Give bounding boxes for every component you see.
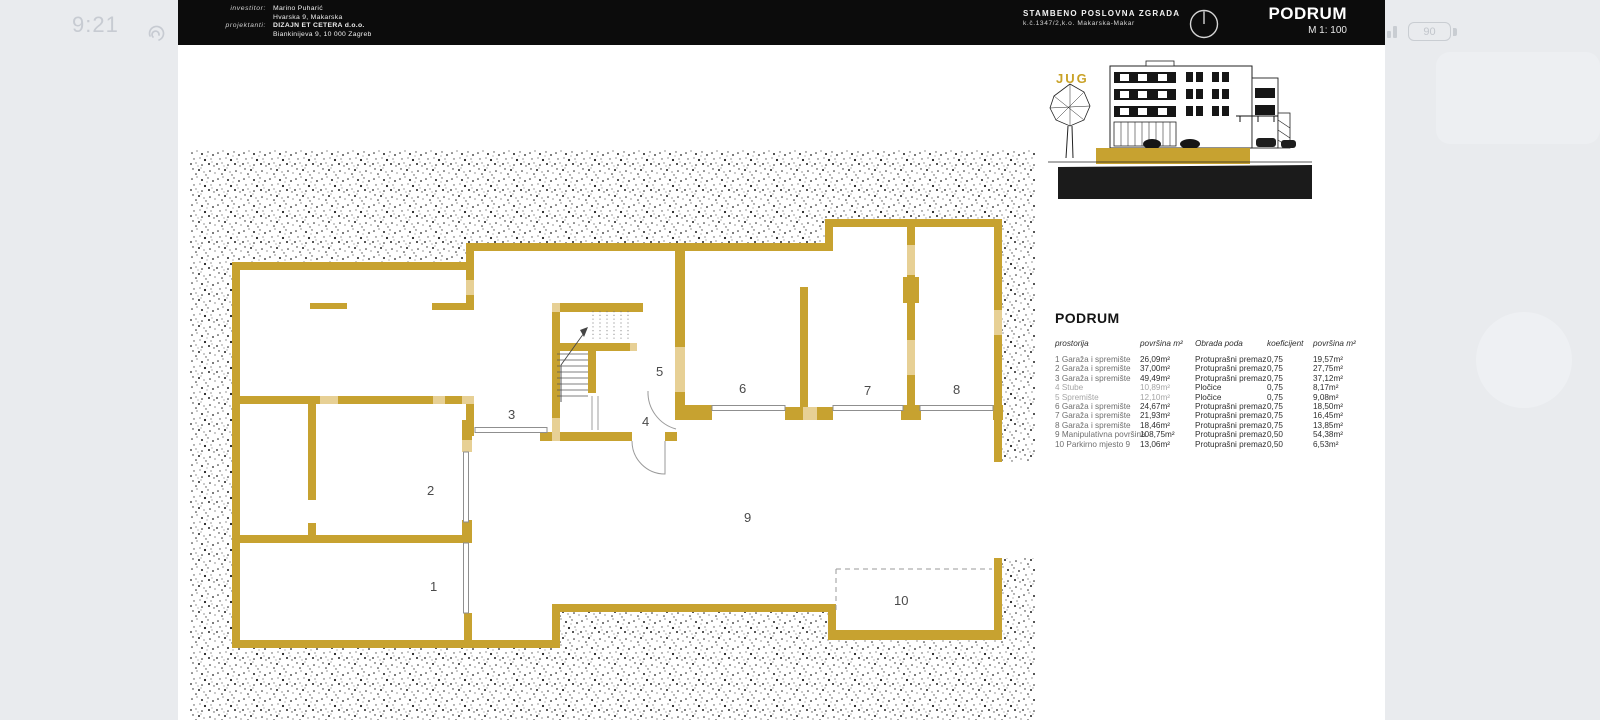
battery-indicator: 90 — [1408, 22, 1451, 41]
cell-coef: 0,75 — [1267, 374, 1313, 383]
cell-area: 10,89m² — [1140, 383, 1195, 392]
cell-area: 13,06m² — [1140, 440, 1195, 449]
status-time: 9:21 — [72, 12, 119, 38]
room-label-5: 5 — [656, 364, 663, 379]
cell-finish: Protuprašni premaz — [1195, 374, 1267, 383]
table-row: 1 Garaža i spremište 26,09m² Protuprašni… — [1055, 355, 1355, 364]
cell-finish: Protuprašni premaz — [1195, 355, 1267, 364]
cell-net: 6,53m² — [1313, 440, 1355, 449]
sheet-scale: M 1: 100 — [1268, 25, 1347, 36]
cell-finish: Protuprašni premaz — [1195, 440, 1267, 449]
cell-coef: 0,50 — [1267, 440, 1313, 449]
cell-area: 12,10m² — [1140, 393, 1195, 402]
room-label-1: 1 — [430, 579, 437, 594]
cell-area: 49,49m² — [1140, 374, 1195, 383]
designer-name: DIZAJN ET CETERA d.o.o. — [273, 22, 372, 31]
room-schedule-table: PODRUM prostorija površina m² Obrada pod… — [1055, 300, 1355, 449]
room-label-2: 2 — [427, 483, 434, 498]
cell-area: 21,93m² — [1140, 411, 1195, 420]
floor-plan-drawing: 1 2 3 4 5 6 7 8 9 10 — [190, 150, 1040, 720]
cell-coef: 0,50 — [1267, 430, 1313, 439]
room-label-3: 3 — [508, 407, 515, 422]
project-parcel: k.č.1347/2,k.o. Makarska-Makar — [1023, 20, 1193, 27]
cell-area: 108,75m² — [1140, 430, 1195, 439]
cell-net: 27,75m² — [1313, 364, 1355, 373]
table-row: 4 Stube 10,89m² Pločice 0,75 8,17m² — [1055, 383, 1355, 392]
cell-net: 37,12m² — [1313, 374, 1355, 383]
south-elevation-drawing: JUG — [1040, 58, 1320, 205]
table-row: 2 Garaža i spremište 37,00m² Protuprašni… — [1055, 364, 1355, 373]
cell-area: 24,67m² — [1140, 402, 1195, 411]
cell-coef: 0,75 — [1267, 383, 1313, 392]
cell-finish: Protuprašni premaz — [1195, 430, 1267, 439]
table-row: 6 Garaža i spremište 24,67m² Protuprašni… — [1055, 402, 1355, 411]
cell-finish: Protuprašni premaz — [1195, 364, 1267, 373]
cell-finish: Protuprašni premaz — [1195, 421, 1267, 430]
cell-finish: Pločice — [1195, 393, 1267, 402]
cell-room: 7 Garaža i spremište — [1055, 411, 1140, 420]
room-label-9: 9 — [744, 510, 751, 525]
table-body: 1 Garaža i spremište 26,09m² Protuprašni… — [1055, 355, 1355, 449]
project-identification: STAMBENO POSLOVNA ZGRADA k.č.1347/2,k.o.… — [1023, 9, 1193, 27]
room-label-6: 6 — [739, 381, 746, 396]
designer-label: projektanti: — [216, 22, 266, 31]
designer-address: Biankinijeva 9, 10 000 Zagreb — [273, 31, 372, 40]
table-row: 3 Garaža i spremište 49,49m² Protuprašni… — [1055, 374, 1355, 383]
col-header-coef: koeficijent — [1267, 339, 1313, 348]
plan-walls — [232, 219, 1003, 648]
battery-nub — [1453, 28, 1457, 36]
col-header-room: prostorija — [1055, 339, 1140, 348]
attachment-icon — [146, 24, 168, 42]
cell-net: 54,38m² — [1313, 430, 1355, 439]
cell-net: 9,08m² — [1313, 393, 1355, 402]
cell-room: 3 Garaža i spremište — [1055, 374, 1140, 383]
cell-room: 2 Garaža i spremište — [1055, 364, 1140, 373]
col-header-net: površina m² — [1313, 339, 1355, 348]
cell-area: 18,46m² — [1140, 421, 1195, 430]
screen-background: 9:21 90 investitor: Marino Puharić Hvars… — [0, 0, 1600, 720]
cell-net: 19,57m² — [1313, 355, 1355, 364]
clock-icon — [1186, 5, 1222, 41]
cell-room: 9 Manipulativna površina — [1055, 430, 1140, 439]
sheet-identification: PODRUM M 1: 100 — [1268, 4, 1347, 36]
cell-room: 1 Garaža i spremište — [1055, 355, 1140, 364]
col-header-finish: Obrada poda — [1195, 339, 1267, 348]
table-row: 9 Manipulativna površina 108,75m² Protup… — [1055, 430, 1355, 439]
cell-room: 10 Parkirno mjesto 9 — [1055, 440, 1140, 449]
cell-coef: 0,75 — [1267, 421, 1313, 430]
cell-area: 26,09m² — [1140, 355, 1195, 364]
cell-finish: Protuprašni premaz — [1195, 411, 1267, 420]
cell-room: 4 Stube — [1055, 383, 1140, 392]
cell-coef: 0,75 — [1267, 364, 1313, 373]
room-label-7: 7 — [864, 383, 871, 398]
cell-net: 16,45m² — [1313, 411, 1355, 420]
signal-icon — [1387, 21, 1405, 39]
cell-finish: Pločice — [1195, 383, 1267, 392]
cell-net: 18,50m² — [1313, 402, 1355, 411]
room-label-4: 4 — [642, 414, 649, 429]
table-title: PODRUM — [1055, 310, 1355, 326]
cell-coef: 0,75 — [1267, 402, 1313, 411]
cell-finish: Protuprašni premaz — [1195, 402, 1267, 411]
investor-address: Hvarska 9, Makarska — [273, 14, 372, 23]
investor-name: Marino Puharić — [273, 5, 372, 14]
project-title: STAMBENO POSLOVNA ZGRADA — [1023, 9, 1193, 18]
elevation-label: JUG — [1056, 71, 1089, 86]
cell-room: 8 Garaža i spremište — [1055, 421, 1140, 430]
table-header-row: prostorija površina m² Obrada poda koefi… — [1055, 339, 1355, 350]
drawing-title-block: investitor: Marino Puharić Hvarska 9, Ma… — [178, 0, 1385, 45]
table-row: 8 Garaža i spremište 18,46m² Protuprašni… — [1055, 421, 1355, 430]
room-label-10: 10 — [894, 593, 908, 608]
cell-area: 37,00m² — [1140, 364, 1195, 373]
watermark-smudge-circle — [1476, 312, 1572, 408]
table-row: 10 Parkirno mjesto 9 13,06m² Protuprašni… — [1055, 440, 1355, 449]
watermark-smudge-top — [1436, 52, 1600, 144]
table-row: 7 Garaža i spremište 21,93m² Protuprašni… — [1055, 411, 1355, 420]
investor-label: investitor: — [216, 5, 266, 14]
cell-coef: 0,75 — [1267, 411, 1313, 420]
battery-percent: 90 — [1423, 26, 1435, 38]
cell-room: 6 Garaža i spremište — [1055, 402, 1140, 411]
cell-coef: 0,75 — [1267, 393, 1313, 402]
cell-coef: 0,75 — [1267, 355, 1313, 364]
col-header-area: površina m² — [1140, 339, 1195, 348]
table-row: 5 Spremište 12,10m² Pločice 0,75 9,08m² — [1055, 393, 1355, 402]
cell-net: 13,85m² — [1313, 421, 1355, 430]
sheet-title: PODRUM — [1268, 4, 1347, 24]
title-block-parties: investitor: Marino Puharić Hvarska 9, Ma… — [216, 5, 372, 39]
cell-room: 5 Spremište — [1055, 393, 1140, 402]
parking-space-marking — [836, 569, 992, 610]
room-label-8: 8 — [953, 382, 960, 397]
cell-net: 8,17m² — [1313, 383, 1355, 392]
